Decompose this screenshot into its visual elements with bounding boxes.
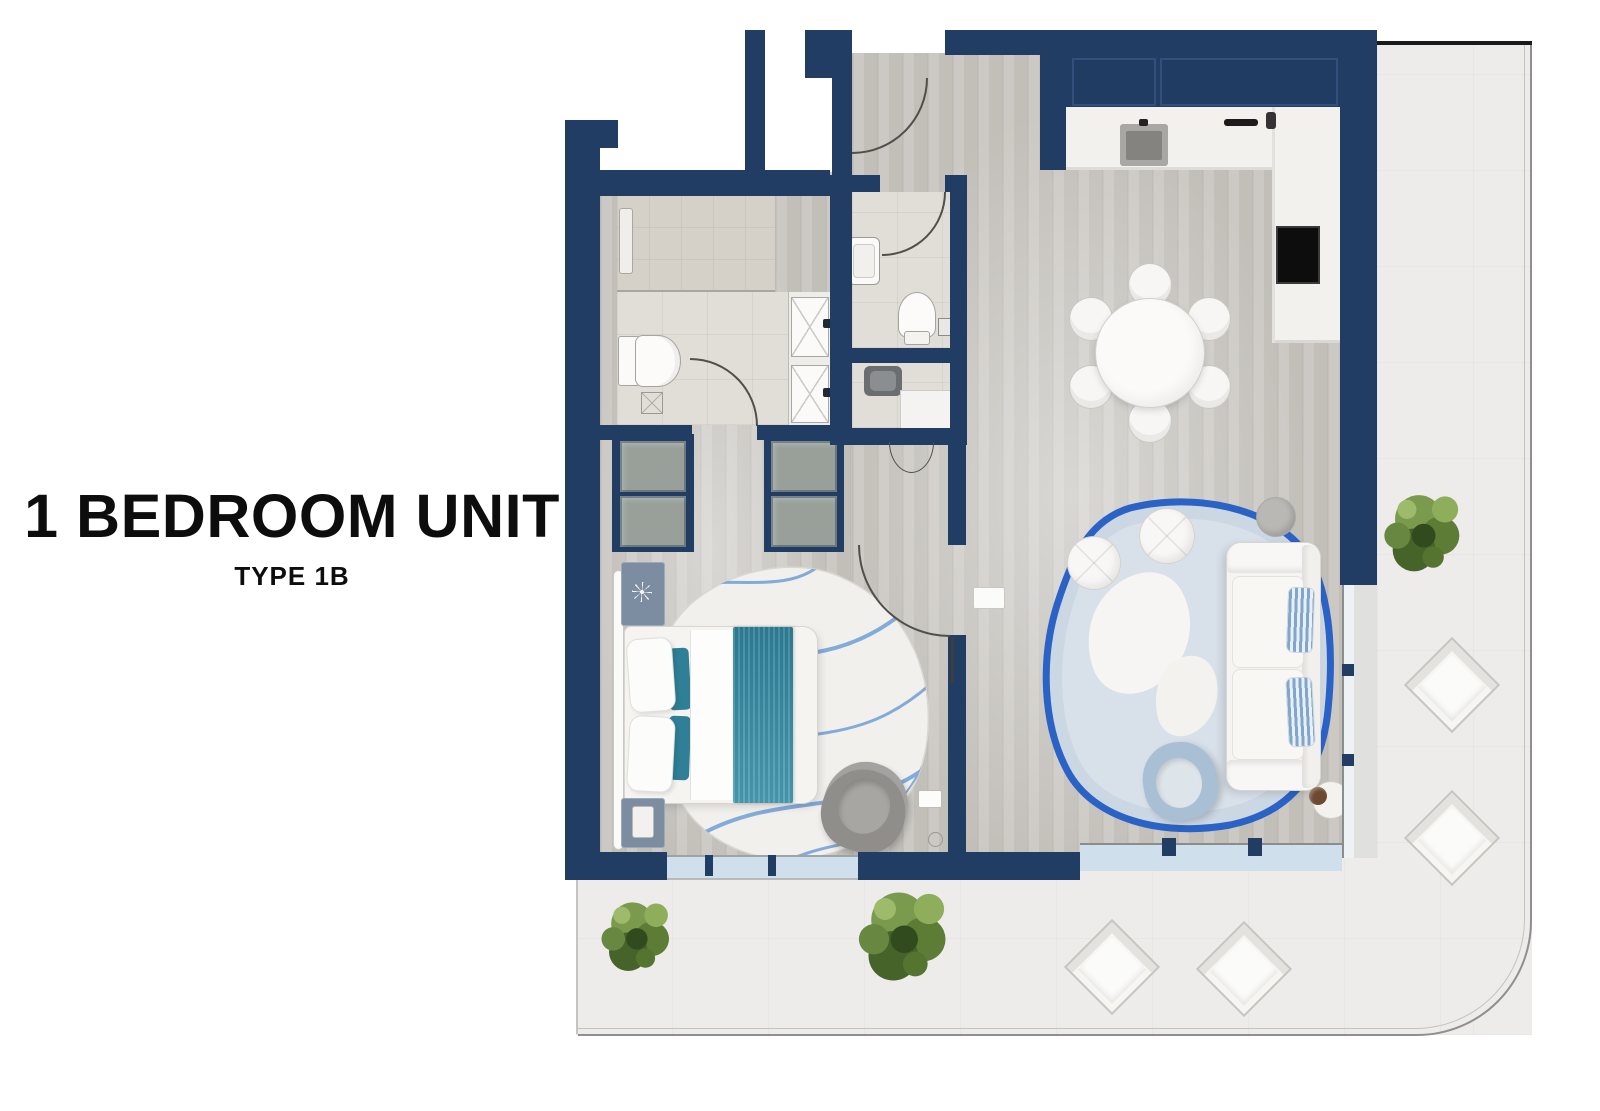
bedroom-floor-ring — [928, 832, 943, 847]
balcony-top-edge — [1377, 41, 1532, 45]
wall-left — [565, 120, 600, 880]
wall-bathroom-top — [600, 170, 830, 196]
bed-runner-teal — [733, 627, 793, 803]
bedroom-window-mullion — [768, 855, 776, 876]
wall-entry-kitchen-partition — [1040, 30, 1066, 170]
shower-panel — [619, 208, 633, 274]
washer-drum — [870, 371, 896, 391]
bed-pillow-2 — [626, 715, 676, 793]
wall-powder-left — [830, 175, 852, 445]
wall-bedroom-bottom-left — [565, 852, 667, 880]
living-pouf-1 — [1068, 537, 1120, 589]
bedroom-window — [667, 855, 858, 880]
plant — [852, 884, 962, 1000]
shower-drain — [641, 392, 663, 414]
wall-top — [945, 30, 1377, 55]
kitchen-bottle — [1266, 112, 1276, 129]
title-block: 1 BEDROOM UNIT TYPE 1B — [18, 486, 566, 592]
kitchen-faucet-bar — [1224, 119, 1258, 126]
kitchen-sink-basin — [1126, 131, 1162, 160]
wall-powder-top-a — [852, 175, 880, 192]
wall-powder-right — [950, 175, 967, 445]
shower-floor — [617, 196, 775, 292]
powder-sink-basin — [853, 244, 875, 278]
living-window-mullion — [1162, 838, 1176, 856]
wall-bedroom-right-upper — [948, 445, 966, 545]
page-title: 1 BEDROOM UNIT — [18, 486, 566, 547]
plant — [1378, 488, 1474, 588]
bed-pillow-1 — [625, 636, 676, 713]
page-subtitle: TYPE 1B — [18, 561, 566, 592]
wardrobe-panel — [620, 496, 686, 547]
kitchen-oven — [1276, 226, 1320, 284]
sofa-pillow-striped-2 — [1286, 677, 1315, 746]
right-window-mullion — [1342, 664, 1354, 676]
nightstand-phone — [632, 806, 654, 838]
kitchen-cabinet-panel-1 — [1072, 58, 1156, 106]
wall-powder-laundry-divider — [852, 348, 950, 363]
bedroom-floor-outlet — [918, 790, 942, 808]
right-window-mullion — [1342, 754, 1354, 766]
wall-right — [1340, 30, 1377, 585]
kitchen-counter-right — [1272, 107, 1340, 343]
plant — [596, 896, 682, 986]
kitchen-sink-faucet — [1139, 119, 1148, 126]
hallway-floor-vent — [973, 587, 1005, 609]
powder-toilet-base — [904, 331, 930, 345]
nightstand-decor — [632, 582, 652, 602]
kitchen-cabinet-panel-2 — [1160, 58, 1338, 106]
dining-table — [1096, 299, 1204, 407]
wardrobe-panel — [771, 441, 837, 492]
balcony-left-edge — [576, 858, 578, 1034]
wall-bathroom-bottom-left — [600, 425, 692, 440]
wall-notch-divider — [745, 30, 765, 172]
sofa-pillow-striped-1 — [1287, 588, 1314, 653]
bedroom-window-mullion — [705, 855, 713, 876]
shower-glass-line — [617, 290, 775, 292]
living-window-bottom — [1080, 843, 1342, 871]
floor-plan-page: 1 BEDROOM UNIT TYPE 1B — [0, 0, 1600, 1111]
living-pouf-2 — [1140, 509, 1194, 563]
wall-entry-stub — [832, 55, 852, 175]
wardrobe-panel — [620, 441, 686, 492]
toilet-bowl — [635, 335, 681, 387]
side-table-bowl — [1309, 787, 1327, 805]
wall-bathroom-bottom-right — [757, 425, 830, 440]
living-window-mullion — [1248, 838, 1262, 856]
sofa-backrest — [1302, 545, 1320, 788]
bed-sheet-fold — [690, 630, 736, 800]
wardrobe-panel — [771, 496, 837, 547]
living-pouf-gray — [1257, 498, 1295, 536]
wall-bedroom-bottom-right — [858, 852, 1080, 880]
window-sill — [1354, 585, 1377, 858]
bedroom-door-leaf — [951, 637, 954, 683]
